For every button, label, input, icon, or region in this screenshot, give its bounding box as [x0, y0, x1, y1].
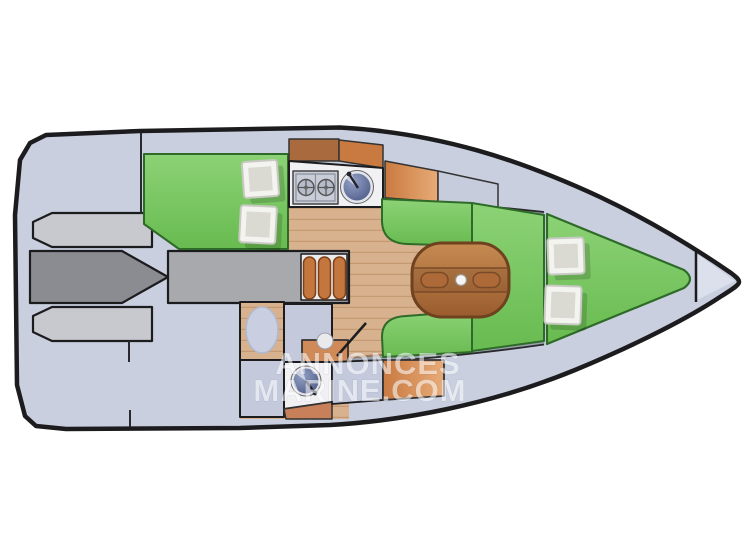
boat-floorplan-svg: ANNONCES MARINE.COM [0, 0, 747, 560]
saloon-table [412, 243, 509, 317]
companionway-step-icon [304, 257, 316, 299]
stove-icon [293, 171, 338, 204]
watermark-line-2: MARINE.COM [253, 373, 466, 408]
pillow [544, 285, 588, 330]
saloon-seat-starboard [382, 199, 472, 246]
table-leaf-handle [421, 273, 448, 288]
companionway-step-icon [334, 257, 346, 299]
table-leaf-handle [473, 273, 500, 288]
galley-cabinet-brown [289, 139, 339, 161]
cockpit-bench-port [33, 307, 152, 341]
toilet-icon [246, 307, 278, 353]
pillow [239, 205, 283, 250]
galley-sink-icon [341, 171, 374, 204]
pillow [547, 237, 590, 280]
pillow [242, 159, 286, 204]
cockpit-bench-starboard [33, 213, 152, 247]
floorplan-image: ANNONCES MARINE.COM [0, 0, 747, 560]
companionway-step-icon [319, 257, 331, 299]
table-center-fitting [456, 275, 467, 286]
